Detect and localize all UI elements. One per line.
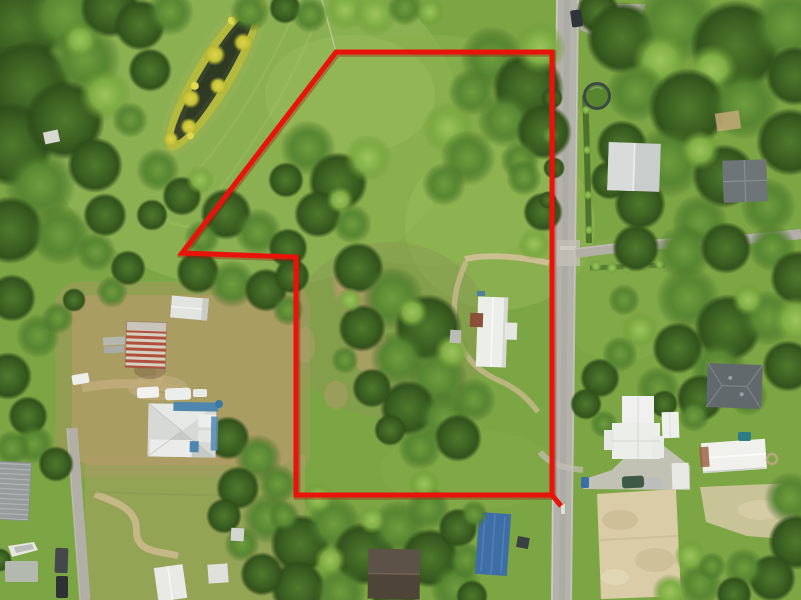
blue-yard-item: [215, 400, 223, 408]
car-blue: [581, 477, 589, 488]
car-dark-top: [570, 9, 583, 27]
camper-trailer: [5, 561, 38, 582]
stop-bar-marking: [560, 246, 576, 250]
small-gray-shed: [450, 330, 462, 344]
truck-dark-2: [56, 576, 68, 598]
house-left-main: [148, 401, 219, 457]
rusty-structure: [699, 447, 709, 468]
house-bottom-left-corner: [0, 461, 31, 521]
car-silver: [645, 478, 663, 490]
aerial-scene: [0, 0, 801, 600]
shed-white-bottom: [154, 564, 187, 600]
white-shed-top: [170, 295, 209, 320]
house-dark-right: [706, 363, 763, 409]
lean-to-shed-2: [104, 345, 124, 353]
barn-white-right: [701, 439, 767, 473]
lean-to-shed: [103, 336, 125, 345]
dark-yard-item: [516, 536, 530, 549]
van-white: [165, 388, 191, 401]
garage-shed: [672, 463, 690, 490]
blue-tarp-item: [477, 291, 485, 296]
house-top-right: [607, 142, 661, 192]
tree-over-tarp: [460, 500, 488, 528]
car-white-3: [193, 389, 207, 397]
pool: [585, 84, 610, 109]
suv-green: [622, 475, 645, 488]
house-brown-bottom: [368, 549, 421, 600]
wood-deck: [470, 313, 483, 327]
truck-dark-1: [55, 548, 69, 573]
car-white-2: [137, 386, 160, 398]
wood-platform: [715, 110, 741, 131]
house-dark-top-right: [722, 159, 767, 203]
shed-tiny: [231, 528, 245, 542]
shed-small-bottom: [207, 563, 228, 583]
car-teal: [738, 432, 751, 441]
aerial-property-photo: [0, 0, 801, 600]
barn-striped: [125, 321, 167, 368]
